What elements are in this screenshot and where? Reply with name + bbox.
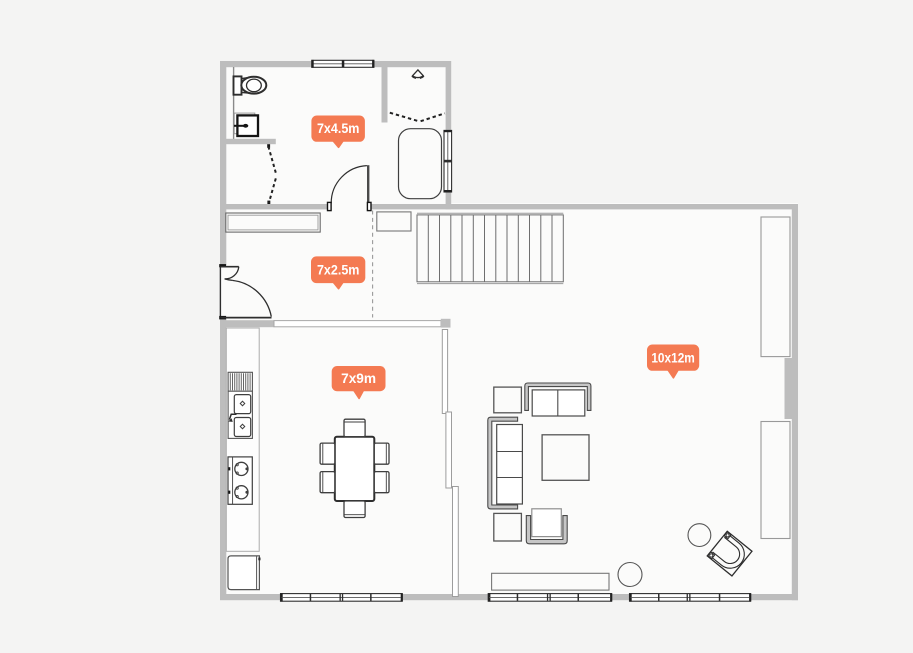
svg-text:7x4.5m: 7x4.5m [317,121,360,136]
svg-text:7x9m: 7x9m [341,371,376,386]
svg-text:7x2.5m: 7x2.5m [317,262,360,277]
svg-text:10x12m: 10x12m [651,350,695,365]
